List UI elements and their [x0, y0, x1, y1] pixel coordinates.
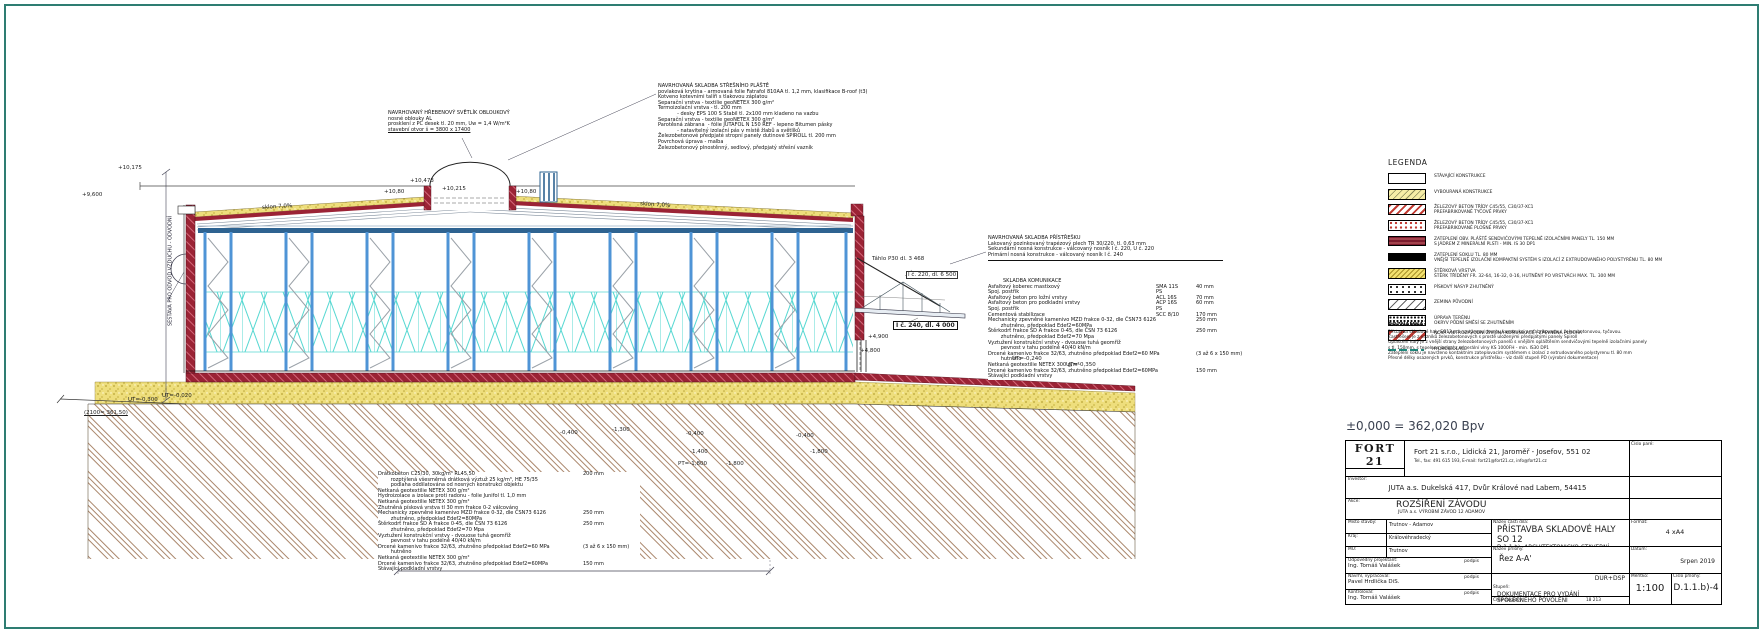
dim-label: -0,400	[796, 433, 814, 439]
wall-left	[186, 205, 195, 373]
legend-item: VYBOURANÁ KONSTRUKCE	[1388, 189, 1733, 200]
legend-item: PÍSKOVÝ NÁSYP ZHUTNĚNÝ	[1388, 284, 1733, 295]
company-cell: Fort 21 s.r.o., Lidická 21, Jaroměř - Jo…	[1404, 441, 1630, 477]
dim-label: +9,600	[82, 192, 102, 198]
company-address: Fort 21 s.r.o., Lidická 21, Jaroměř - Jo…	[1404, 441, 1629, 456]
meritko-cell: Měřítko: 1:100	[1629, 573, 1672, 604]
dim-label: +10,175	[118, 165, 142, 171]
dim-label: +4,900	[868, 334, 888, 340]
fort21-logo: FORT 21	[1346, 441, 1404, 469]
pare-empty-cell2	[1629, 498, 1721, 520]
notes-block: POZNÁMKA: Přístavba skladové haly SO12 m…	[1388, 322, 1733, 361]
dim-label: +10,473	[410, 178, 434, 184]
parapet-left	[178, 206, 195, 214]
dim-label: -1,400	[690, 449, 708, 455]
dim-label: -1,800	[810, 449, 828, 455]
swatch-existing	[1388, 173, 1426, 184]
investor-value: JUTA a.s. Dukelská 417, Dvůr Králové nad…	[1346, 482, 1629, 492]
dim-label: (2100= 361,50)	[84, 410, 128, 416]
annotation-road-assembly: SKLADBA KOMUNIKACE Asfaltový koberec mas…	[988, 279, 1238, 380]
dim-label: UT=-0,350	[1066, 362, 1096, 368]
dim-label: -0,400	[686, 431, 704, 437]
dim-label: +10,215	[442, 186, 466, 192]
swatch-rc-planar	[1388, 220, 1426, 231]
legend-item: ZATEPLENÍ OBV. PLÁŠTĚ SENDVIČOVÝMI TEPEL…	[1388, 236, 1733, 247]
wall-right	[855, 216, 864, 340]
dim-label: I č. 240, dl. 4 000	[893, 321, 958, 330]
nazev-prilohy-value: Řez A-A'	[1491, 552, 1629, 563]
dim-label: +4,800	[860, 348, 880, 354]
pare-empty-cell	[1629, 476, 1721, 499]
annotation-roof-assembly: NAVRHOVANÁ SKLADBA STŘEŠNÍHO PLÁŠTĚpovla…	[658, 84, 918, 151]
annotation-skylight: NAVRHOVANÝ HŘEBENOVÝ SVĚTLÍK OBLOUKOVÝno…	[388, 111, 568, 133]
legend-item: ŽELEZOVÝ BETON TŘÍDY C45/55, C30/37-XC1P…	[1388, 220, 1733, 231]
floor-slab	[186, 373, 855, 382]
swatch-soil	[1388, 299, 1426, 310]
logo-cell: FORT 21s.r.o.	[1346, 441, 1405, 477]
parapet-right	[851, 204, 863, 216]
navrhl-cell: Navrhl, vypracoval: podpis Pavel Hrdličk…	[1346, 573, 1492, 590]
misto-label-cell: Místo stavby:	[1346, 519, 1387, 534]
annotation-canopy-assembly: NAVRHOVANÁ SKLADBA PŘÍSTŘEŠKULakovaný po…	[988, 236, 1223, 261]
leader-canopy-text	[950, 252, 986, 264]
dim-label: UT=-0,300	[128, 397, 158, 403]
investor-cell: Investor: JUTA a.s. Dukelská 417, Dvůr K…	[1346, 476, 1630, 499]
roof-vent-box	[540, 172, 557, 202]
legend-title: LEGENDA	[1388, 158, 1733, 167]
legend-item: STÁVAJÍCÍ KONSTRUKCE	[1388, 173, 1733, 184]
skylight-curb-right	[509, 186, 516, 210]
leader-skylight-text	[462, 138, 472, 158]
cislo-pare-cell: Číslo paré:	[1629, 441, 1721, 477]
title-block: FORT 21s.r.o. Fort 21 s.r.o., Lidická 21…	[1345, 440, 1722, 605]
swatch-sand	[1388, 284, 1426, 295]
stupen-cell: Stupeň: DUR+DSP DOKUMENTACE PRO VYDÁNÍ S…	[1491, 573, 1630, 604]
datum-cell: Datum: Srpen 2019	[1629, 546, 1721, 574]
nazev-casti-1: PŘÍSTAVBA SKLADOVÉ HALY SO 12	[1491, 525, 1629, 545]
nazev-prilohy-cell: Název přílohy: Řez A-A'	[1491, 546, 1630, 574]
format-cell: Formát: 4 xA4	[1629, 519, 1721, 547]
roof-truss-beam	[198, 228, 853, 233]
odp-projektant-cell: Odpovědný projektant: podpis Ing. Tomáš …	[1346, 557, 1492, 574]
legend-item: ZATEPLENÍ SOKLU TL. 80 MMVNĚJŠÍ TEPELNĚ …	[1388, 252, 1733, 263]
akce-value: ROZŠÍŘENÍ ZÁVODU	[1346, 500, 1629, 510]
drawing-sheet: SESTAVA PRO ODVOD VZDUCHU - ODVODNÍ NAVR…	[0, 0, 1763, 633]
cislo-prilohy-cell: Číslo přílohy: D.1.1.b)-4	[1671, 573, 1721, 604]
cislo-prilohy-value: D.1.1.b)-4	[1671, 579, 1721, 593]
swatch-gravel	[1388, 268, 1426, 279]
dim-label: -1,800	[726, 461, 744, 467]
notes-title: POZNÁMKA:	[1388, 322, 1733, 328]
dim-label: UT=-0,020	[162, 393, 192, 399]
dim-label: Táhlo P30 dl. 3 468	[872, 256, 924, 262]
legend-item: ŽELEZOVÝ BETON TŘÍDY C45/55, C30/37-XC1P…	[1388, 204, 1733, 215]
akce-sub: JUTA a.s. VÝROBNÍ ZÁVOD 12 ADAMOV	[1346, 510, 1629, 515]
kraj-label-cell: Kraj:	[1346, 533, 1387, 547]
cislo-zakazky-row: Číslo zakázky: 18 213	[1491, 596, 1629, 604]
kraj-value-cell: Královéhradecký	[1386, 533, 1492, 547]
dim-label: PT=-1,800	[678, 461, 707, 467]
legend-item: ZEMINA PŮVODNÍ	[1388, 299, 1733, 310]
swatch-rc-linear	[1388, 204, 1426, 215]
dim-label: +10,80	[516, 189, 536, 195]
dim-label: UT=-0,240	[1012, 356, 1042, 362]
left-vertical-note: SESTAVA PRO ODVOD VZDUCHU - ODVODNÍ	[168, 159, 174, 384]
swatch-plinth-insulation	[1388, 253, 1426, 261]
legend-item: ŠTĚRKOVÁ VRSTVAŠTĚRK TŘÍDĚNÝ FR. 32-64, …	[1388, 268, 1733, 279]
elevation-reference: ±0,000 = 362,020 Bpv	[1346, 419, 1484, 433]
nazev-casti-cell: Název části díla: PŘÍSTAVBA SKLADOVÉ HAL…	[1491, 519, 1630, 547]
annotation-floor-assembly: Drátkobeton C25/30, 30kg/m³ RL45,50200 m…	[378, 472, 640, 568]
skylight-curb-left	[424, 186, 431, 210]
company-contact: Tel., fax: 491 615 193, E-mail: fort21@f…	[1404, 456, 1629, 463]
stupen-code: DUR+DSP	[1595, 575, 1625, 582]
dim-label: -1,300	[612, 427, 630, 433]
akce-cell: Akce: ROZŠÍŘENÍ ZÁVODU JUTA a.s. VÝROBNÍ…	[1346, 498, 1630, 520]
dim-label: I č. 220, dl. 6 500	[906, 271, 958, 279]
misto-value-cell: Trutnov - Adamov	[1386, 519, 1492, 534]
swatch-demolished	[1388, 189, 1426, 200]
meritko-value: 1:100	[1629, 579, 1671, 594]
kontroloval-cell: Kontroloval: podpis Ing. Tomáš Valášek	[1346, 589, 1492, 604]
dim-label: +10,80	[384, 189, 404, 195]
dim-label: -0,400	[560, 430, 578, 436]
swatch-sandwich-panel	[1388, 236, 1426, 246]
